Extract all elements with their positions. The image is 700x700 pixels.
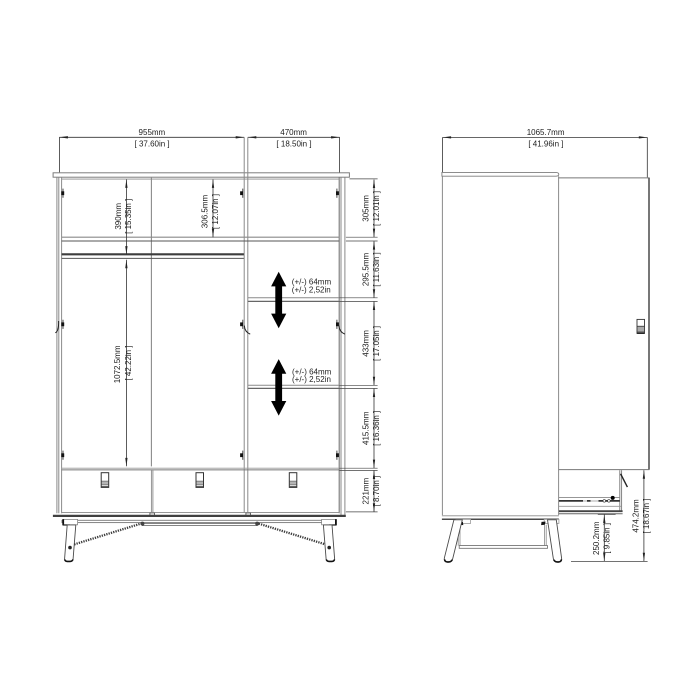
svg-text:[ 42.22in ]: [ 42.22in ] (124, 345, 133, 380)
svg-text:[ 12.07in ]: [ 12.07in ] (211, 194, 220, 229)
svg-text:[ 41.96in ]: [ 41.96in ] (528, 139, 563, 148)
svg-text:390mm: 390mm (114, 203, 123, 230)
svg-text:474.2mm: 474.2mm (631, 499, 640, 533)
svg-text:1065.7mm: 1065.7mm (527, 128, 565, 137)
svg-text:[ 12.01in ]: [ 12.01in ] (372, 191, 381, 226)
svg-text:470mm: 470mm (280, 128, 307, 137)
svg-text:(+/-) 2,52in: (+/-) 2,52in (292, 375, 331, 384)
svg-text:[ 9.85in ]: [ 9.85in ] (602, 523, 611, 554)
svg-text:306.5mm: 306.5mm (201, 194, 210, 228)
svg-text:415.5mm: 415.5mm (362, 411, 371, 445)
svg-text:[ 16.36in ]: [ 16.36in ] (372, 411, 381, 446)
svg-text:(+/-) 2,52in: (+/-) 2,52in (292, 285, 331, 294)
svg-text:[ 11.63in ]: [ 11.63in ] (372, 252, 381, 287)
svg-text:250.2mm: 250.2mm (592, 521, 601, 555)
svg-text:[ 18.50in ]: [ 18.50in ] (276, 139, 311, 148)
svg-text:295.5mm: 295.5mm (362, 252, 371, 286)
svg-text:433mm: 433mm (362, 330, 371, 357)
svg-text:1072.5mm: 1072.5mm (113, 345, 122, 383)
svg-text:[ 8.70in ]: [ 8.70in ] (372, 476, 381, 507)
svg-text:[ 37.60in ]: [ 37.60in ] (135, 139, 170, 148)
svg-text:221mm: 221mm (362, 477, 371, 504)
svg-text:[ 17.05in ]: [ 17.05in ] (372, 326, 381, 361)
svg-text:[ 18.67in ]: [ 18.67in ] (642, 498, 651, 533)
svg-text:[ 15.35in ]: [ 15.35in ] (124, 199, 133, 234)
svg-text:305mm: 305mm (362, 195, 371, 222)
svg-text:955mm: 955mm (139, 128, 166, 137)
